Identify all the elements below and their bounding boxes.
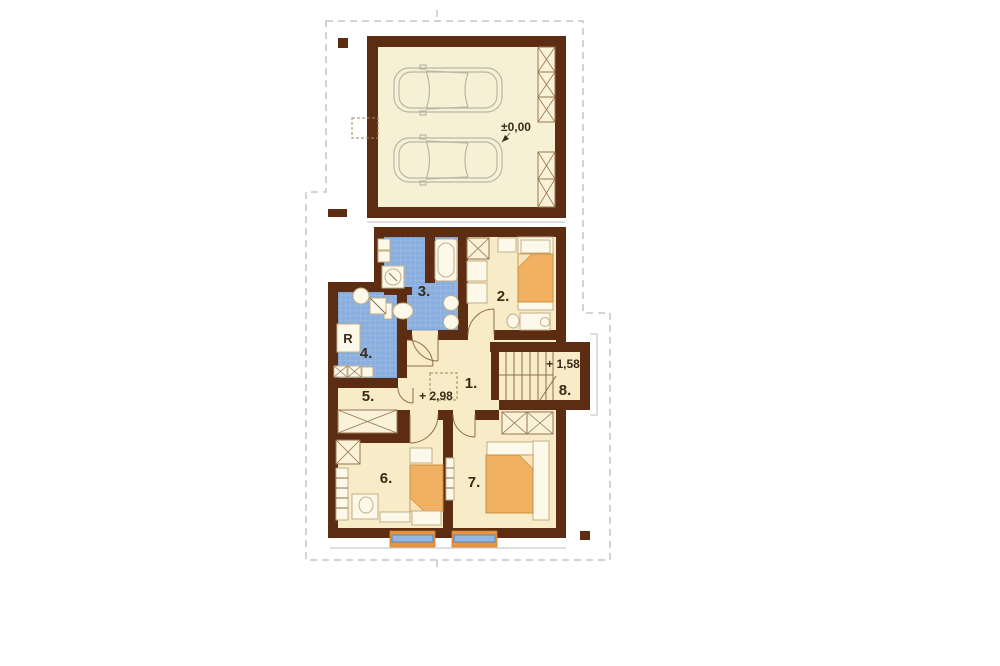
- floor-plan-page: ±0,00: [0, 0, 1000, 666]
- chair-room6: [359, 497, 373, 513]
- nightstand-room2: [498, 238, 516, 252]
- room-1-label: 1.: [465, 375, 478, 392]
- sink-2: [444, 315, 459, 330]
- wardrobe-room5: [338, 410, 397, 433]
- room-5-label: 5.: [362, 388, 375, 405]
- room-3-label: 3.: [418, 283, 431, 300]
- garage-level-label: ±0,00: [501, 120, 531, 134]
- wardrobe-under-stairs: [502, 412, 553, 434]
- appliance-r-label: R: [343, 331, 353, 346]
- room-8-label: 8.: [559, 382, 572, 399]
- bed-room7: [486, 455, 533, 513]
- upper-level-label: + 2,98: [419, 389, 453, 403]
- room-2-label: 2.: [497, 288, 510, 305]
- laundry-sink: [353, 288, 369, 304]
- notch-top-left: [338, 237, 374, 282]
- window-room7: [452, 531, 497, 547]
- floor-plan-svg: ±0,00: [0, 0, 1000, 666]
- room-7-label: 7.: [468, 474, 481, 491]
- room-6-label: 6.: [380, 470, 393, 487]
- room-4-label: 4.: [360, 345, 373, 362]
- nightstand-room6: [410, 448, 432, 463]
- window-room6: [390, 531, 435, 547]
- garage: ±0,00: [352, 36, 566, 218]
- sink-1: [444, 296, 459, 311]
- chair-room2: [507, 314, 519, 328]
- plant-room2: [541, 318, 550, 327]
- upper-floor: R: [328, 227, 590, 547]
- shelf-room6: [336, 468, 348, 520]
- headboard-room7: [533, 441, 549, 520]
- landing-level-label: + 1,58: [546, 357, 580, 371]
- radiator-room7: [446, 458, 454, 500]
